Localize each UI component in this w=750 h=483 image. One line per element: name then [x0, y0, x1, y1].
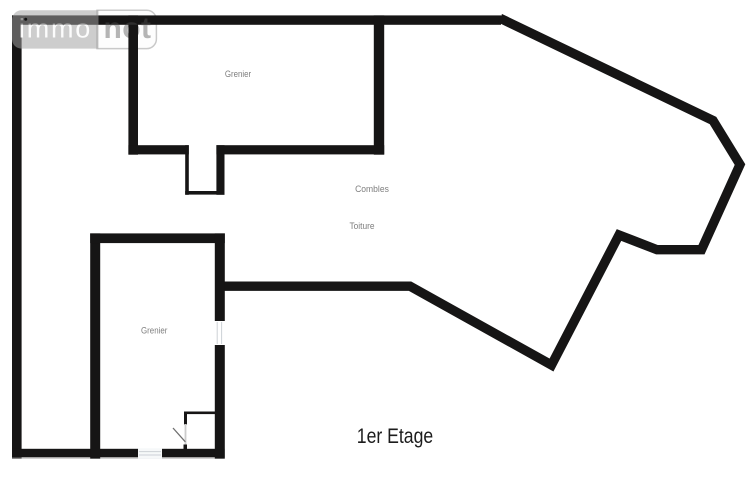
svg-text:Grenier: Grenier [141, 325, 167, 336]
svg-text:Combles: Combles [355, 183, 389, 193]
svg-text:1er Etage: 1er Etage [357, 424, 433, 448]
svg-text:Toiture: Toiture [349, 221, 374, 232]
svg-text:Grenier: Grenier [225, 68, 251, 79]
